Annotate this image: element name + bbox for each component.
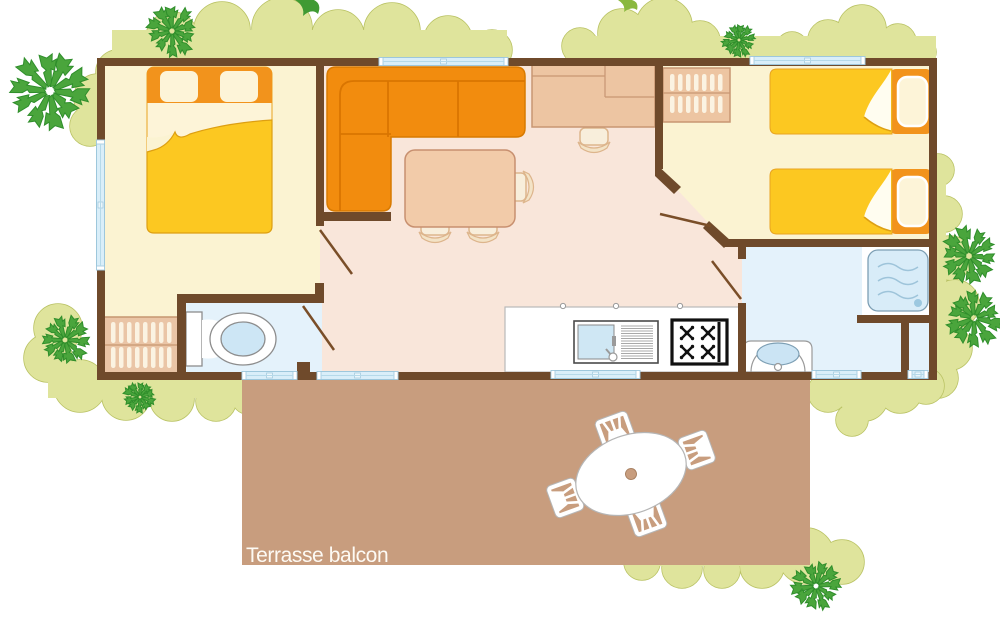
svg-text:Terrasse balcon: Terrasse balcon [246, 544, 388, 567]
